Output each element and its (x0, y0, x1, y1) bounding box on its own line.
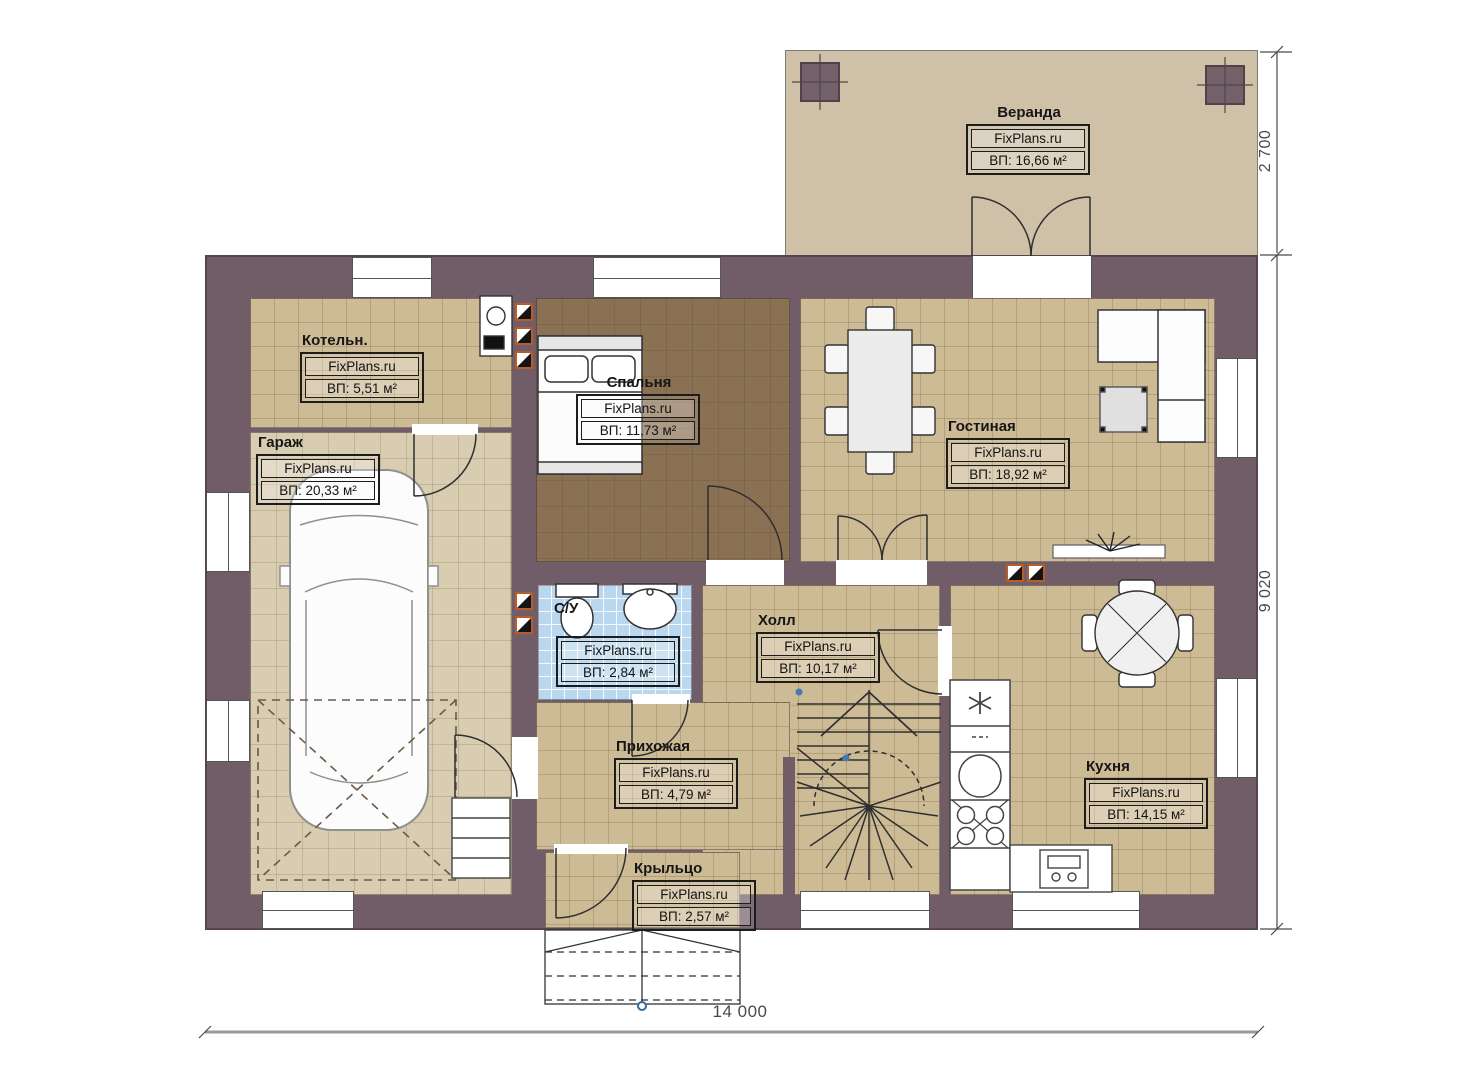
room-area: ВП: 18,92 м² (951, 465, 1065, 484)
window-top-boiler (352, 257, 432, 298)
garage-door-opening (512, 737, 538, 799)
room-label-porch: Крыльцо FixPlans.ru ВП: 2,57 м² (632, 860, 756, 931)
bathroom-door-opening (632, 694, 690, 704)
room-name: Спальня (576, 374, 700, 391)
window-left-garage-2 (206, 700, 250, 762)
room-name: Гостиная (946, 418, 1070, 435)
label-box: FixPlans.ru ВП: 18,92 м² (946, 438, 1070, 489)
room-label-living: Гостиная FixPlans.ru ВП: 18,92 м² (946, 418, 1070, 489)
room-name: Гараж (256, 434, 380, 451)
vent-icon (515, 616, 533, 634)
label-box: FixPlans.ru ВП: 20,33 м² (256, 454, 380, 505)
bedroom-door-opening (706, 560, 784, 585)
room-area: ВП: 14,15 м² (1089, 805, 1203, 824)
room-area: ВП: 20,33 м² (261, 481, 375, 500)
room-label-garage: Гараж FixPlans.ru ВП: 20,33 м² (256, 434, 380, 505)
window-top-bedroom (593, 257, 721, 298)
watermark: FixPlans.ru (761, 637, 875, 656)
stair-wall (783, 757, 795, 895)
label-box: FixPlans.ru ВП: 11,73 м² (576, 394, 700, 445)
vent-icon (1027, 564, 1045, 582)
window-bottom-hall (800, 891, 930, 929)
label-box: FixPlans.ru ВП: 5,51 м² (300, 352, 424, 403)
room-name-bathroom: С/У (552, 600, 578, 617)
veranda-column-left (800, 62, 840, 102)
vent-icon (515, 303, 533, 321)
room-area: ВП: 5,51 м² (305, 379, 419, 398)
dimension-house-width: 14 000 (660, 1002, 820, 1022)
watermark: FixPlans.ru (619, 763, 733, 782)
watermark: FixPlans.ru (261, 459, 375, 478)
room-label-boiler: Котельн. FixPlans.ru ВП: 5,51 м² (300, 332, 424, 403)
room-label-veranda: Веранда FixPlans.ru ВП: 16,66 м² (966, 104, 1090, 175)
label-box: FixPlans.ru ВП: 4,79 м² (614, 758, 738, 809)
vent-icon (515, 351, 533, 369)
veranda-column-right (1205, 65, 1245, 105)
kitchen-door-opening (938, 626, 952, 696)
entrance-door-opening (554, 844, 628, 854)
vent-icon (1006, 564, 1024, 582)
watermark: FixPlans.ru (305, 357, 419, 376)
watermark: FixPlans.ru (951, 443, 1065, 462)
room-name: Веранда (966, 104, 1090, 121)
room-area: ВП: 11,73 м² (581, 421, 695, 440)
watermark: FixPlans.ru (581, 399, 695, 418)
room-label-hall: Холл FixPlans.ru ВП: 10,17 м² (756, 612, 880, 683)
watermark: FixPlans.ru (561, 641, 675, 660)
label-box: FixPlans.ru ВП: 10,17 м² (756, 632, 880, 683)
room-area: ВП: 2,57 м² (637, 907, 751, 926)
label-box: FixPlans.ru ВП: 14,15 м² (1084, 778, 1208, 829)
room-label-entry: Прихожая FixPlans.ru ВП: 4,79 м² (614, 738, 738, 809)
living-hall-opening (836, 560, 927, 585)
window-bottom-kitchen (1012, 891, 1140, 929)
window-right-kitchen (1216, 678, 1257, 778)
vent-icon (515, 592, 533, 610)
room-name: Крыльцо (632, 860, 756, 877)
room-name: Котельн. (300, 332, 424, 349)
room-label-bathroom: FixPlans.ru ВП: 2,84 м² (556, 636, 680, 687)
room-label-kitchen: Кухня FixPlans.ru ВП: 14,15 м² (1084, 758, 1208, 829)
dimension-veranda-depth: 2 700 (1257, 116, 1275, 186)
room-kitchen-floor (950, 585, 1215, 895)
window-right-living (1216, 358, 1257, 458)
dimension-house-height: 9 020 (1257, 556, 1275, 626)
room-area: ВП: 10,17 м² (761, 659, 875, 678)
room-area: ВП: 16,66 м² (971, 151, 1085, 170)
porch-steps-icon (545, 930, 740, 1010)
vent-icon (515, 327, 533, 345)
room-name: Прихожая (614, 738, 738, 755)
room-area: ВП: 2,84 м² (561, 663, 675, 682)
watermark: FixPlans.ru (1089, 783, 1203, 802)
garage-gate (262, 891, 354, 929)
window-left-garage-1 (206, 492, 250, 572)
floor-plan: Веранда FixPlans.ru ВП: 16,66 м² Котельн… (0, 0, 1473, 1080)
room-area: ВП: 4,79 м² (619, 785, 733, 804)
room-name: Кухня (1084, 758, 1208, 775)
room-label-bedroom: Спальня FixPlans.ru ВП: 11,73 м² (576, 374, 700, 445)
veranda-door-opening (972, 256, 1092, 298)
label-box: FixPlans.ru ВП: 2,84 м² (556, 636, 680, 687)
room-name: Холл (756, 612, 880, 629)
watermark: FixPlans.ru (971, 129, 1085, 148)
watermark: FixPlans.ru (637, 885, 751, 904)
label-box: FixPlans.ru ВП: 2,57 м² (632, 880, 756, 931)
label-box: FixPlans.ru ВП: 16,66 м² (966, 124, 1090, 175)
boiler-door-opening (412, 424, 478, 435)
